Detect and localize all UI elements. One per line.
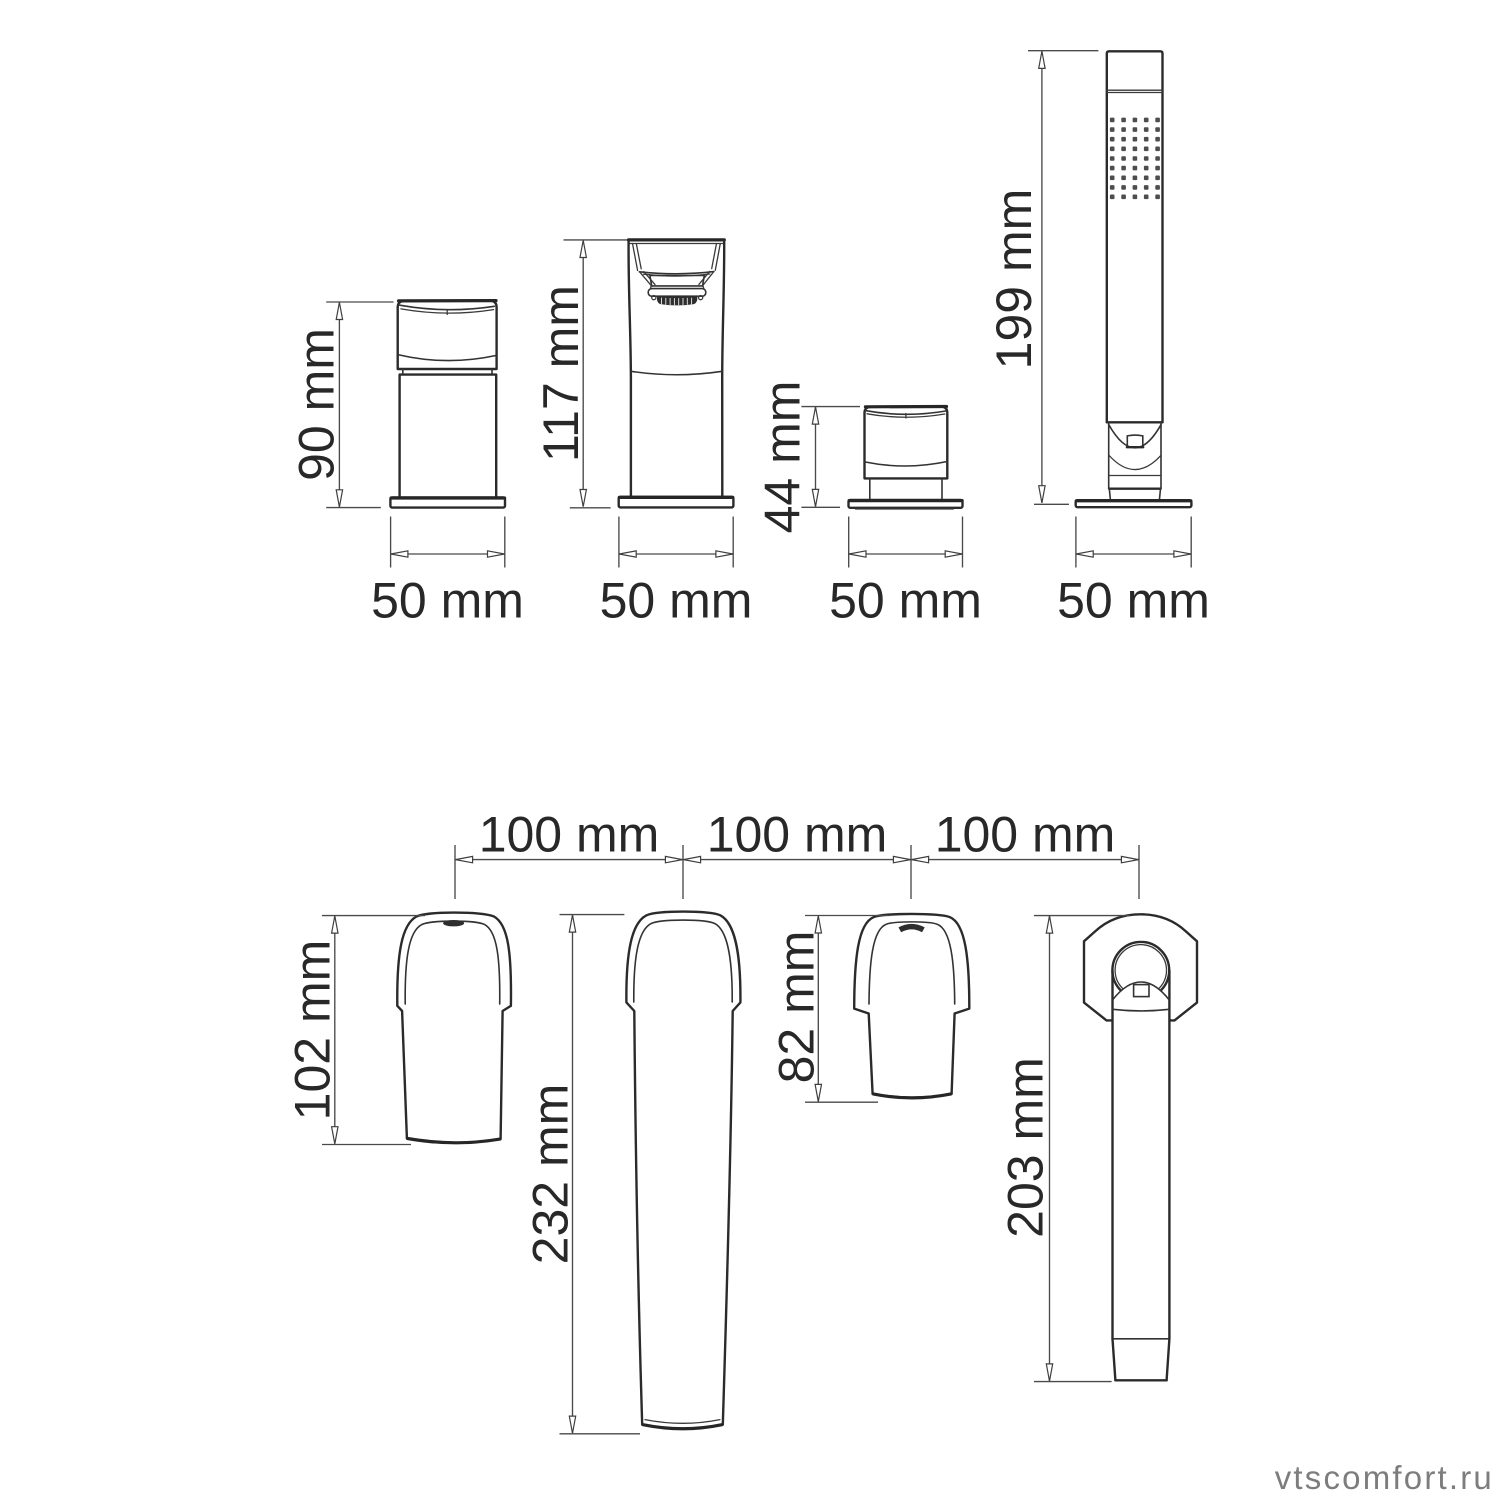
svg-text:199 mm: 199 mm bbox=[986, 189, 1042, 370]
svg-text:100 mm: 100 mm bbox=[707, 807, 888, 863]
svg-text:44 mm: 44 mm bbox=[754, 381, 810, 534]
svg-text:50 mm: 50 mm bbox=[1057, 573, 1210, 629]
svg-text:50 mm: 50 mm bbox=[829, 573, 982, 629]
svg-text:203 mm: 203 mm bbox=[998, 1057, 1054, 1238]
svg-text:102 mm: 102 mm bbox=[285, 940, 341, 1121]
svg-text:50 mm: 50 mm bbox=[600, 573, 753, 629]
svg-text:100 mm: 100 mm bbox=[935, 807, 1116, 863]
svg-text:90 mm: 90 mm bbox=[288, 328, 344, 481]
svg-text:100 mm: 100 mm bbox=[479, 807, 660, 863]
svg-text:232 mm: 232 mm bbox=[522, 1084, 578, 1265]
svg-text:vtscomfort.ru: vtscomfort.ru bbox=[1275, 1459, 1494, 1496]
svg-text:82 mm: 82 mm bbox=[768, 931, 824, 1084]
svg-text:117 mm: 117 mm bbox=[533, 285, 589, 462]
svg-text:50 mm: 50 mm bbox=[371, 573, 524, 629]
